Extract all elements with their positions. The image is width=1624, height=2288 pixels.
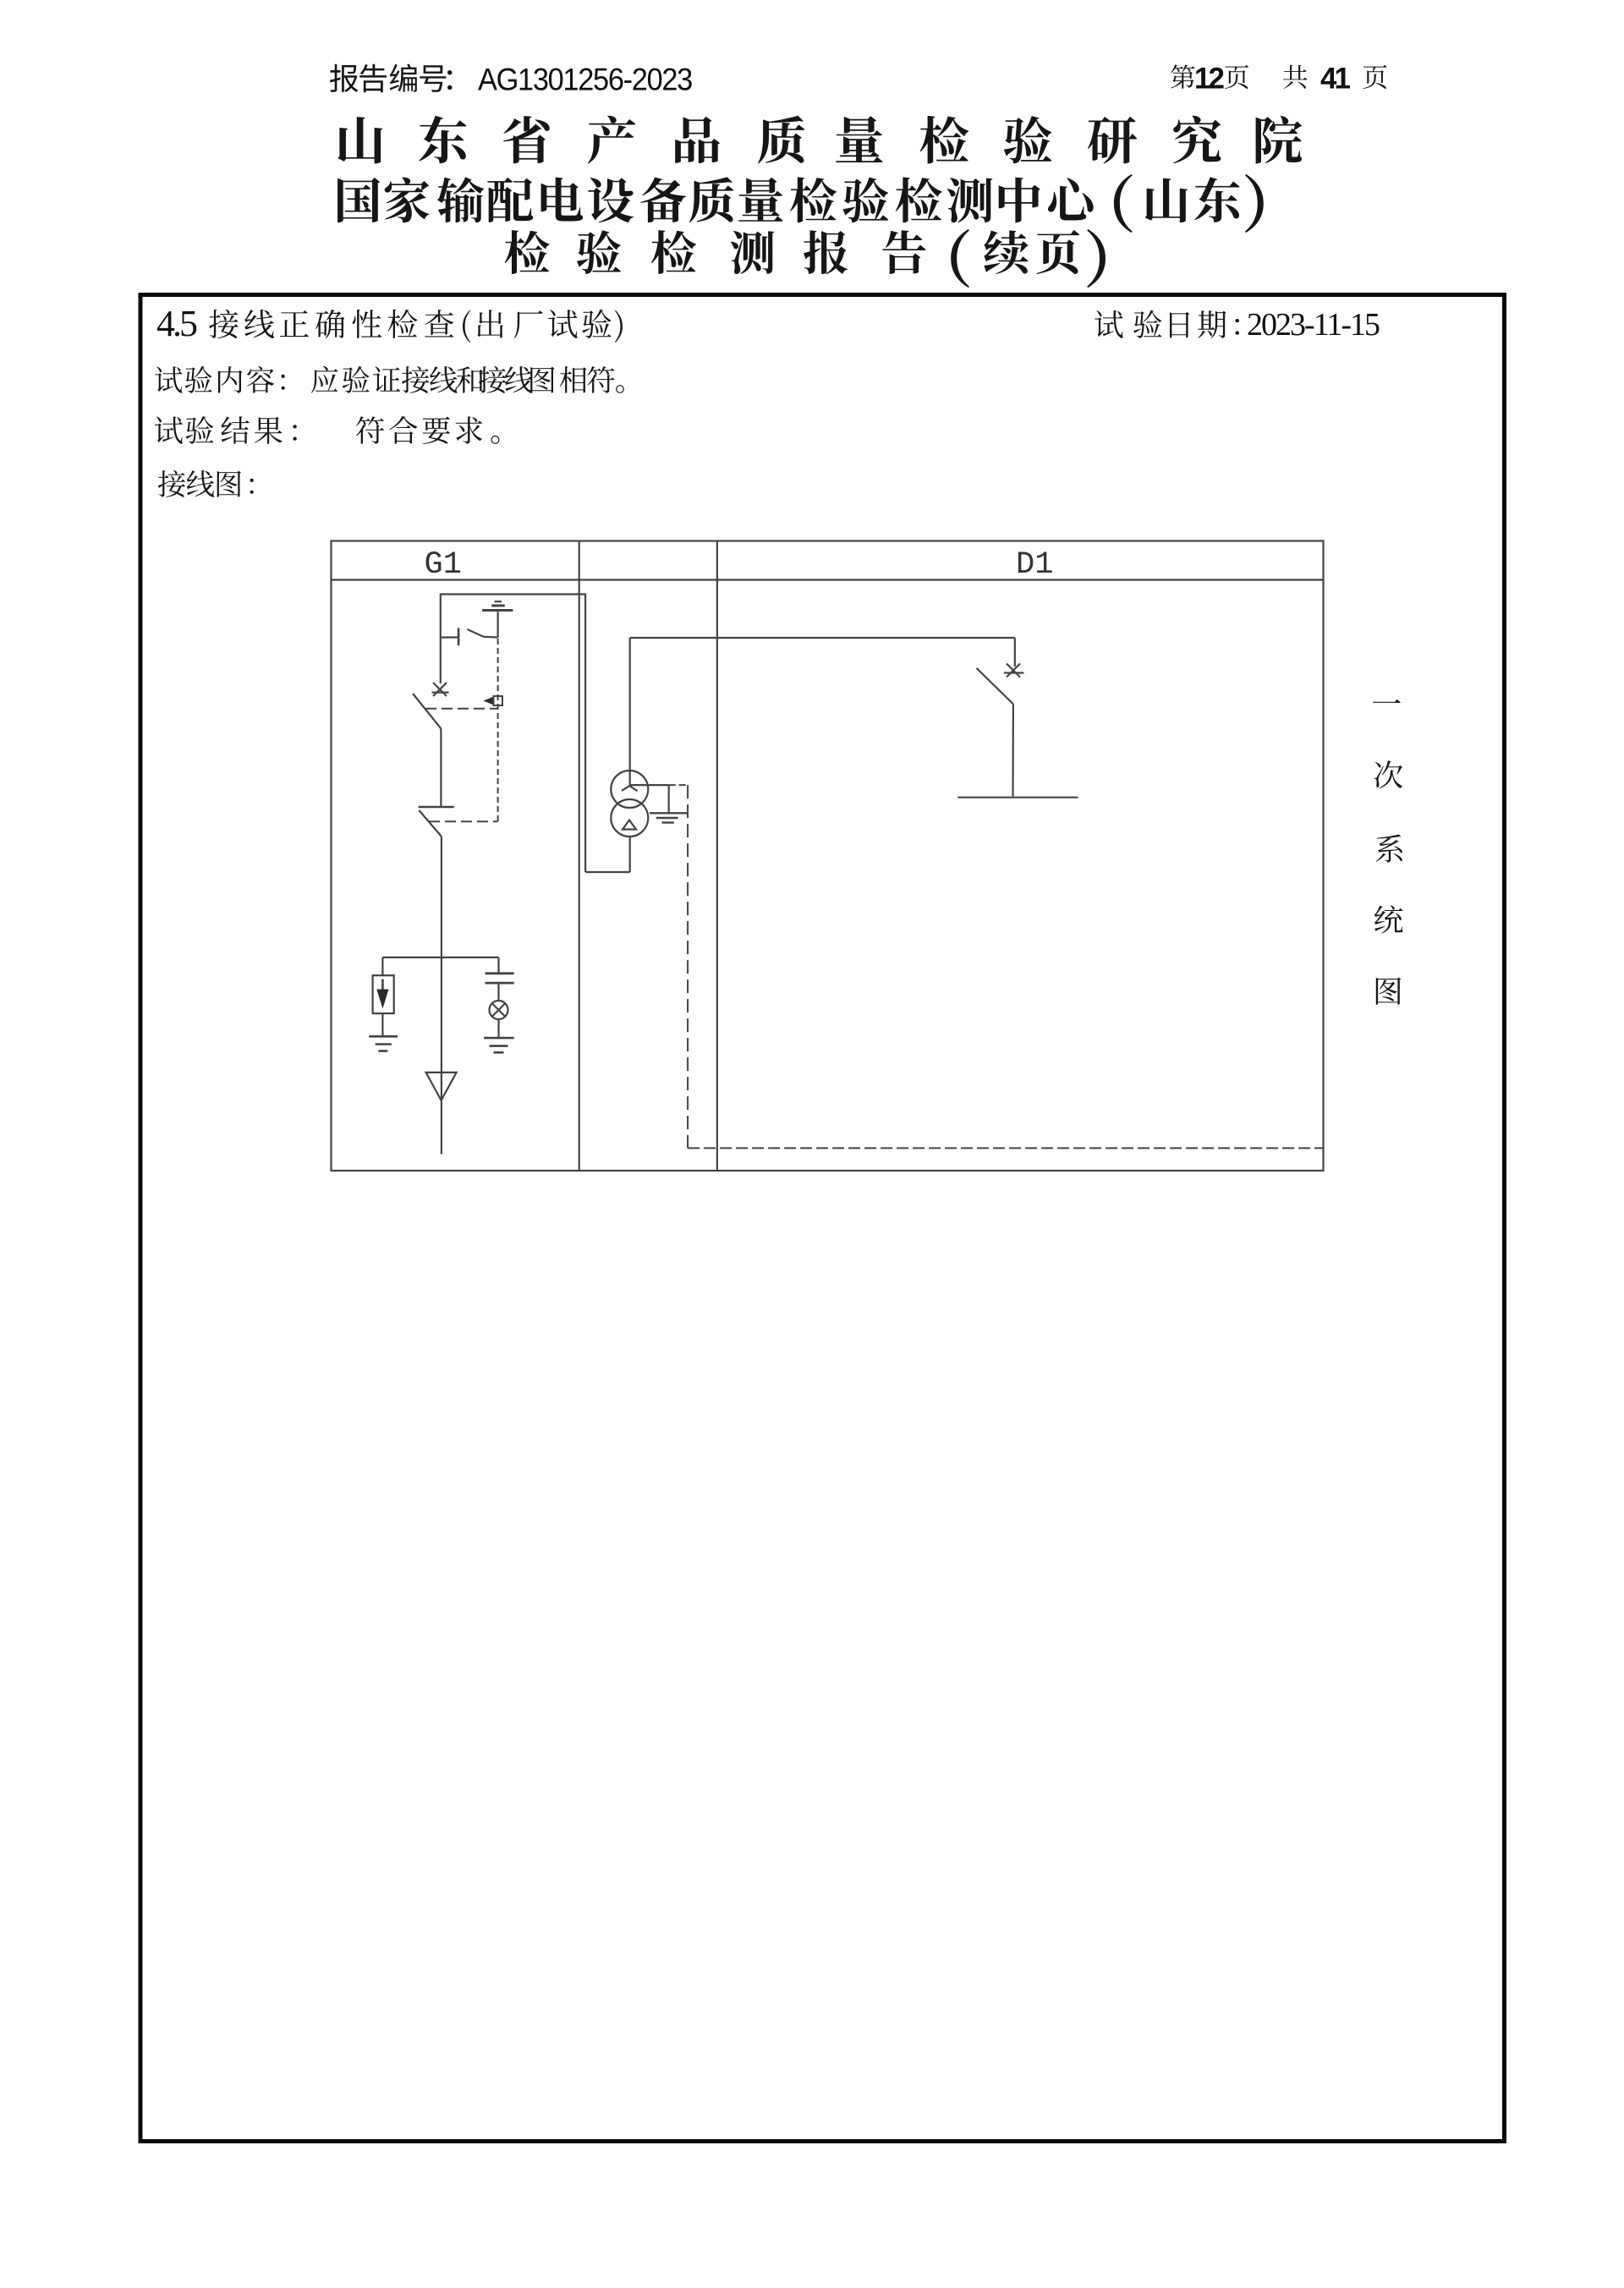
svg-text:2023-11-15: 2023-11-15 — [1247, 307, 1380, 343]
svg-text:41: 41 — [1320, 63, 1350, 96]
svg-text:4.5: 4.5 — [156, 303, 198, 344]
svg-text:G1: G1 — [425, 547, 462, 583]
svg-text:AG1301256-2023: AG1301256-2023 — [478, 63, 692, 97]
svg-text:12: 12 — [1194, 63, 1224, 96]
svg-text:D1: D1 — [1016, 547, 1053, 583]
